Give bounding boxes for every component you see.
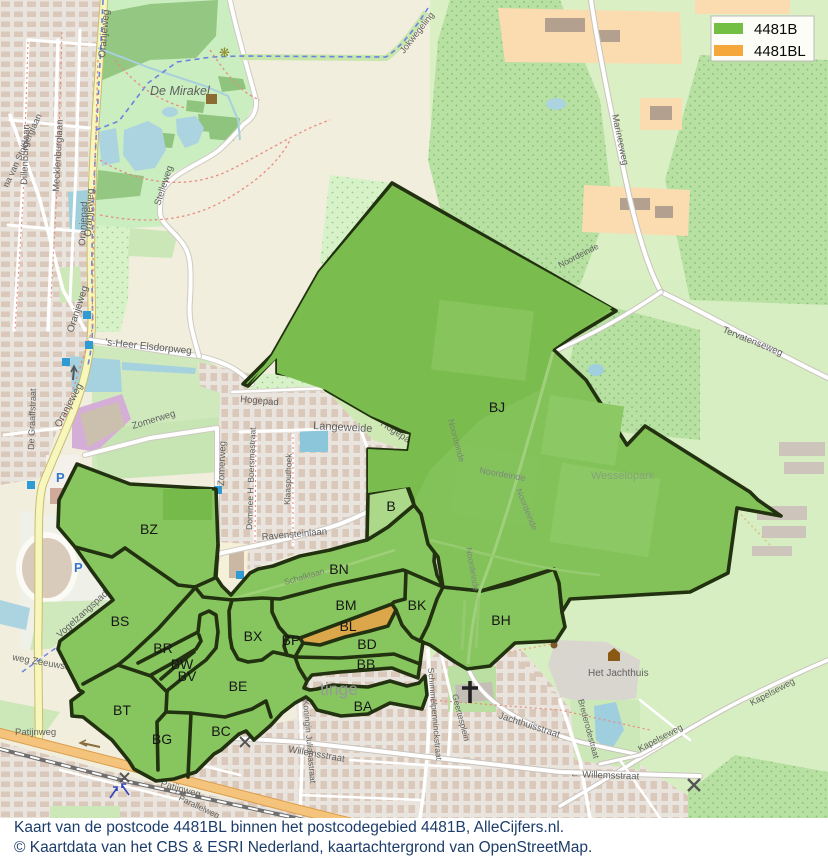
- svg-text:Zomerweg: Zomerweg: [216, 441, 229, 486]
- svg-text:De Mirakel: De Mirakel: [150, 84, 211, 98]
- svg-text:© Kaartdata van het CBS & ESRI: © Kaartdata van het CBS & ESRI Nederland…: [14, 839, 592, 856]
- svg-text:Kaart van de postcode 4481BL b: Kaart van de postcode 4481BL binnen het …: [14, 819, 564, 836]
- svg-text:BZ: BZ: [140, 521, 158, 537]
- svg-text:BX: BX: [244, 628, 263, 644]
- svg-text:BE: BE: [229, 678, 248, 694]
- svg-text:Wesselopark: Wesselopark: [591, 470, 655, 482]
- svg-text:BC: BC: [211, 723, 230, 739]
- svg-text:BP: BP: [282, 632, 301, 648]
- svg-text:BN: BN: [329, 561, 348, 577]
- svg-text:BT: BT: [113, 702, 131, 718]
- svg-text:BD: BD: [357, 636, 376, 652]
- svg-text:P: P: [74, 560, 83, 575]
- svg-text:tinge: tinge: [320, 679, 358, 699]
- svg-text:BH: BH: [491, 612, 510, 628]
- svg-text:Klaasputhoek: Klaasputhoek: [282, 452, 294, 505]
- svg-text:BM: BM: [336, 597, 357, 613]
- svg-text:BK: BK: [408, 597, 427, 613]
- svg-text:BS: BS: [111, 613, 130, 629]
- svg-text:BL: BL: [339, 618, 356, 634]
- svg-text:❋: ❋: [219, 45, 230, 60]
- svg-text:BR: BR: [153, 640, 172, 656]
- svg-text:BA: BA: [354, 698, 373, 714]
- svg-text:BB: BB: [357, 656, 376, 672]
- svg-text:4481B: 4481B: [754, 21, 797, 38]
- svg-text:BV: BV: [178, 668, 197, 684]
- svg-text:4481BL: 4481BL: [754, 43, 806, 60]
- svg-text:BG: BG: [152, 731, 172, 747]
- svg-text:B: B: [386, 498, 395, 514]
- svg-text:P: P: [56, 470, 65, 485]
- svg-text:Het Jachthuis: Het Jachthuis: [588, 668, 649, 679]
- svg-text:Patijnweg: Patijnweg: [15, 727, 56, 738]
- svg-text:BJ: BJ: [489, 399, 505, 415]
